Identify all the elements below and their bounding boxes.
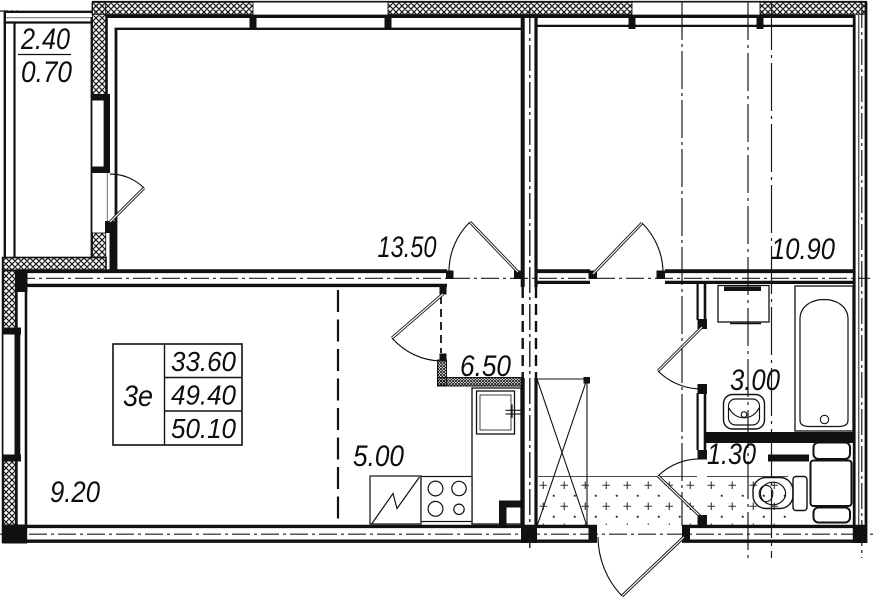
svg-text:50.10: 50.10 [171, 413, 236, 444]
svg-text:6.50: 6.50 [460, 350, 511, 383]
svg-text:9.20: 9.20 [50, 476, 100, 509]
svg-text:2.40: 2.40 [20, 23, 70, 56]
svg-text:10.90: 10.90 [771, 233, 835, 266]
svg-text:3.00: 3.00 [730, 364, 780, 397]
svg-text:1.30: 1.30 [707, 438, 756, 471]
svg-text:5.00: 5.00 [353, 440, 404, 473]
svg-text:49.40: 49.40 [171, 380, 236, 411]
svg-text:3е: 3е [123, 380, 153, 413]
svg-text:0.70: 0.70 [21, 56, 72, 89]
svg-text:33.60: 33.60 [171, 346, 236, 377]
svg-text:13.50: 13.50 [378, 231, 437, 264]
